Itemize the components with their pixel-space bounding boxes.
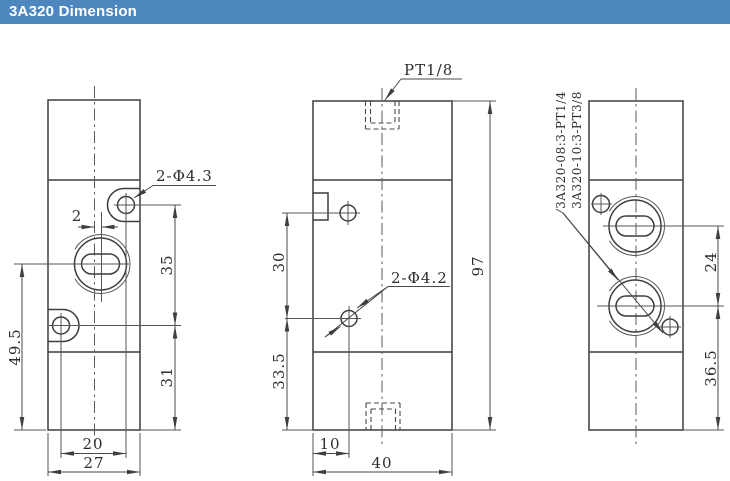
- page-title: 3A320 Dimension: [9, 3, 137, 20]
- back-view: 24 36.5 3A320-08:3-PT1/4 3A320-10:3-PT3/…: [554, 88, 724, 444]
- back-variant-label-1: 3A320-08:3-PT1/4: [554, 91, 568, 209]
- front-dim-label-20: 20: [82, 435, 103, 453]
- front-dim-hole-span-vertical: 35: [158, 205, 176, 326]
- front-dim-label-27: 27: [83, 454, 104, 472]
- back-dim-label-24: 24: [702, 251, 720, 272]
- side-callout-pt18-label: PT1/8: [404, 61, 453, 79]
- back-dim-label-36-5: 36.5: [702, 349, 720, 386]
- catalog-page: 3A320 Dimension: [0, 0, 730, 481]
- front-dim-label-31: 31: [158, 366, 176, 387]
- front-view: 49.5 35 31 2 20 27: [6, 86, 216, 476]
- back-variant-label-2: 3A320-10:3-PT3/8: [570, 91, 584, 209]
- side-dim-label-97: 97: [469, 255, 487, 276]
- side-dim-lower-hole: 33.5: [270, 319, 288, 431]
- side-dim-hole-offset: 10: [313, 433, 349, 476]
- front-dim-hole-span-horizontal: 20: [61, 435, 126, 454]
- front-dim-lower-section: 31: [158, 326, 176, 431]
- side-callout-phi42-label: 2-Φ4.2: [391, 269, 448, 287]
- side-dim-upper-hole: 30: [270, 213, 288, 319]
- side-view: 30 33.5 97 10 40 PT1/8: [270, 61, 496, 476]
- side-dim-height: 97: [469, 101, 490, 430]
- back-dim-lower-port: 36.5: [702, 306, 720, 430]
- front-dim-label-2: 2: [72, 207, 83, 225]
- section-header-bar: 3A320 Dimension: [0, 0, 730, 24]
- front-dim-label-35: 35: [158, 254, 176, 275]
- side-callout-top-port: PT1/8: [385, 61, 462, 100]
- side-dim-label-10: 10: [319, 435, 340, 453]
- side-bottom-port-hidden-lines: [366, 403, 400, 430]
- front-dim-label-49-5: 49.5: [6, 328, 24, 365]
- dimension-drawing: 49.5 35 31 2 20 27: [0, 24, 730, 481]
- front-callout-mount-holes: 2-Φ4.3: [134, 167, 216, 198]
- side-dim-label-40: 40: [371, 454, 392, 472]
- side-dim-label-30: 30: [270, 251, 288, 272]
- side-dim-label-33-5: 33.5: [270, 352, 288, 389]
- back-dim-port-span: 24: [702, 226, 720, 306]
- front-callout-label: 2-Φ4.3: [156, 167, 213, 185]
- side-notch: [313, 193, 328, 220]
- side-callout-holes: 2-Φ4.2: [325, 269, 450, 337]
- front-dim-port-height: 49.5: [6, 264, 24, 430]
